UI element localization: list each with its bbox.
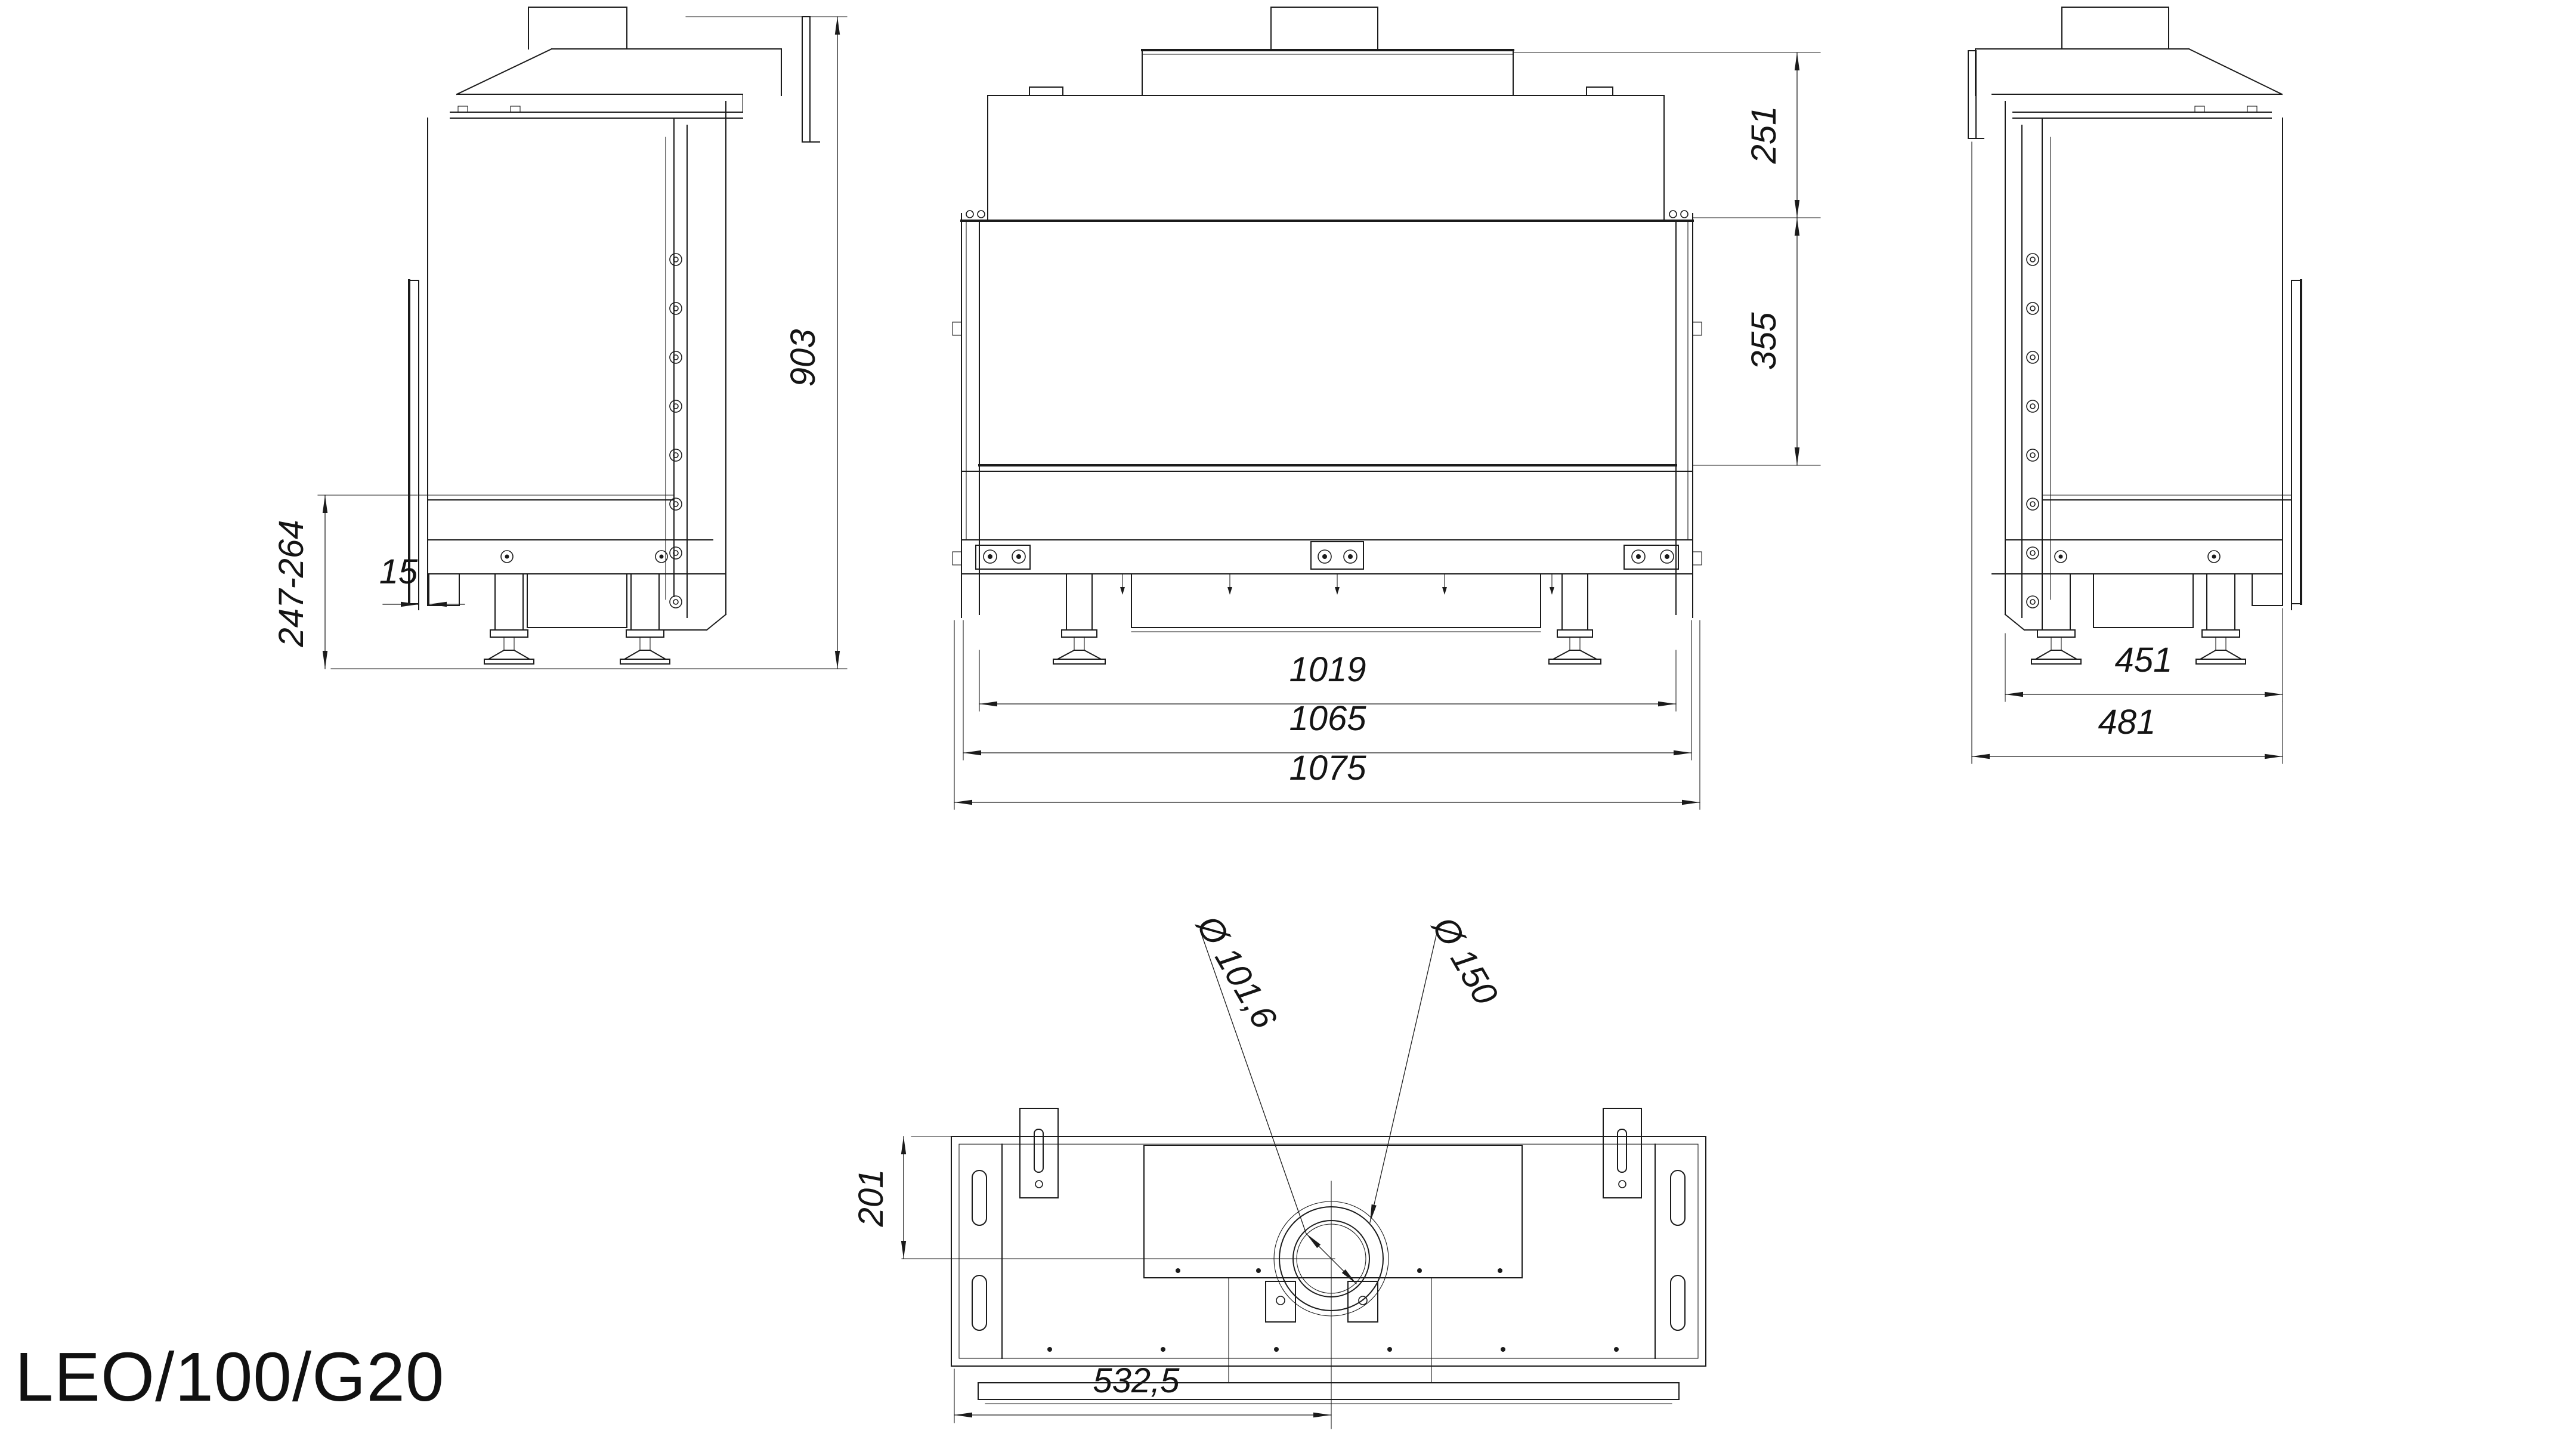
dim-bottom-flue-outer-diameter: Ø 150: [1424, 909, 1505, 1011]
right-side-view: 451 481: [1968, 7, 2301, 764]
bottom-view: 201 532,5 Ø 101,6 Ø 150: [852, 908, 1706, 1429]
dim-front-frame-width: 1065: [1289, 699, 1366, 738]
dim-front-hood-height: 251: [1745, 106, 1783, 165]
dim-front-overall-width: 1075: [1289, 749, 1366, 787]
dim-bottom-flue-side-offset: 532,5: [1093, 1361, 1180, 1400]
dim-front-glass-height: 355: [1745, 312, 1783, 370]
dim-left-base-height: 247-264: [272, 520, 311, 648]
drawing-title: LEO/100/G20: [15, 1338, 444, 1416]
dim-bottom-flue-inner-diameter: Ø 101,6: [1189, 908, 1285, 1036]
front-view: 251 355 1019 1065 1075: [953, 7, 1820, 810]
dim-left-glass-offset: 15: [379, 552, 418, 591]
technical-drawing: 903 247-264 15: [0, 0, 2576, 1449]
convection-holes-right: [2027, 254, 2039, 608]
base-screws: [1120, 574, 1554, 595]
left-side-view: 903 247-264 15: [272, 7, 847, 669]
convection-holes-left: [670, 254, 682, 608]
drawing-page: 903 247-264 15: [0, 0, 2576, 1449]
dim-left-overall-height: 903: [784, 329, 822, 387]
dim-front-glass-width: 1019: [1289, 650, 1366, 689]
dim-right-overall-depth: 481: [2098, 703, 2156, 742]
legs-left-view: [484, 574, 670, 664]
dim-right-body-depth: 451: [2115, 641, 2173, 679]
dim-bottom-flue-rear-offset: 201: [852, 1169, 890, 1228]
